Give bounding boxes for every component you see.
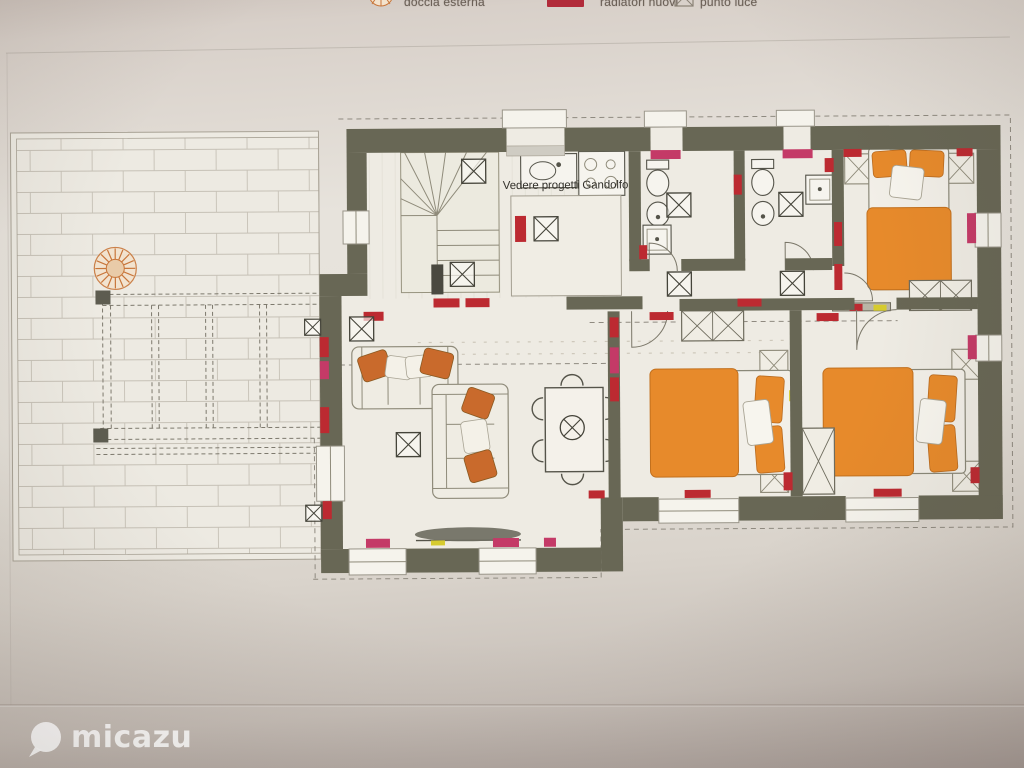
radiator-new	[817, 313, 839, 321]
legend-label-outdoor-shower: doccia esterna	[404, 0, 485, 9]
toilet	[752, 159, 774, 195]
window	[316, 446, 344, 501]
light-point-icon	[780, 271, 804, 295]
radiator-new	[874, 489, 902, 497]
sofa-vertical	[432, 384, 509, 498]
toilet	[647, 160, 669, 196]
micazu-logo-bubble-icon	[26, 716, 64, 760]
radiator	[651, 150, 681, 159]
micazu-wordmark: micazu	[71, 716, 192, 760]
radiator-new	[465, 298, 489, 307]
radiator-new	[610, 377, 619, 401]
terrace	[10, 131, 323, 561]
double-bed	[650, 368, 793, 477]
wardrobe	[682, 311, 744, 341]
light-point-icon	[450, 262, 474, 286]
radiator-new	[589, 490, 605, 498]
kitchen-island	[511, 195, 622, 296]
floor-plan-drawing: Vedere progetti Gandolfo	[0, 0, 1024, 768]
light-point-icon	[305, 319, 321, 335]
light-point-icon	[667, 193, 691, 217]
light-point-icon	[350, 317, 374, 341]
radiator-new	[834, 222, 842, 246]
radiator-new	[734, 175, 742, 195]
legend: doccia esterna radiatori nuovi punto luc…	[0, 0, 1024, 26]
light-point-icon	[779, 192, 803, 216]
radiator-new	[639, 245, 647, 259]
outdoor-shower-sun-icon	[366, 0, 396, 12]
radiator	[366, 539, 390, 548]
radiator-new	[737, 298, 761, 306]
plan-note: Vedere progetti Gandolfo	[503, 179, 629, 192]
radiator-new	[610, 317, 619, 337]
radiator-new	[685, 490, 711, 498]
radiator-new	[650, 312, 674, 320]
radiator-new	[825, 158, 834, 172]
radiator	[967, 213, 976, 243]
entry-threshold	[507, 146, 565, 156]
radiator	[544, 538, 556, 547]
pergola-post	[93, 428, 108, 442]
bidet	[752, 201, 774, 225]
radiator	[968, 335, 977, 359]
new-radiator-swatch-icon	[547, 0, 584, 7]
micazu-watermark: micazu	[26, 716, 192, 760]
pergola-post	[95, 290, 110, 304]
radiator-new	[844, 149, 862, 157]
double-bed	[823, 367, 966, 476]
radiator	[783, 149, 813, 158]
window	[659, 499, 739, 523]
legend-label-new-radiators: radiatori nuovi	[600, 0, 678, 9]
radiator-new	[433, 298, 459, 307]
radiator-new	[515, 216, 526, 242]
wardrobe-tall	[802, 428, 834, 494]
window	[976, 335, 1002, 361]
radiator-new	[323, 501, 332, 519]
radiator	[320, 361, 329, 379]
outdoor-shower-icon	[94, 247, 136, 289]
radiator-new	[320, 337, 329, 357]
light-point-icon	[667, 272, 691, 296]
nightstand	[946, 153, 974, 183]
light-point-icon	[674, 0, 694, 10]
radiator-new	[834, 264, 842, 290]
shower	[806, 175, 834, 204]
radiator-new	[320, 407, 329, 433]
floor-plan-photo: Vedere progetti Gandolfo	[0, 0, 1024, 768]
light-point-icon	[306, 505, 322, 521]
radiator	[493, 538, 519, 547]
light-point-icon	[396, 433, 420, 457]
light-point-icon	[462, 159, 486, 183]
bidet	[647, 202, 669, 226]
radiator-new	[971, 467, 980, 483]
radiator	[610, 347, 619, 373]
window	[846, 498, 919, 522]
window	[343, 211, 369, 244]
window	[479, 548, 536, 574]
window	[975, 213, 1001, 247]
window	[349, 549, 406, 575]
double-bed	[867, 147, 952, 290]
radiator-new	[784, 472, 793, 490]
radiator-new	[957, 148, 973, 156]
legend-label-light-point: punto luce	[700, 0, 757, 9]
light-point-icon	[534, 217, 558, 241]
